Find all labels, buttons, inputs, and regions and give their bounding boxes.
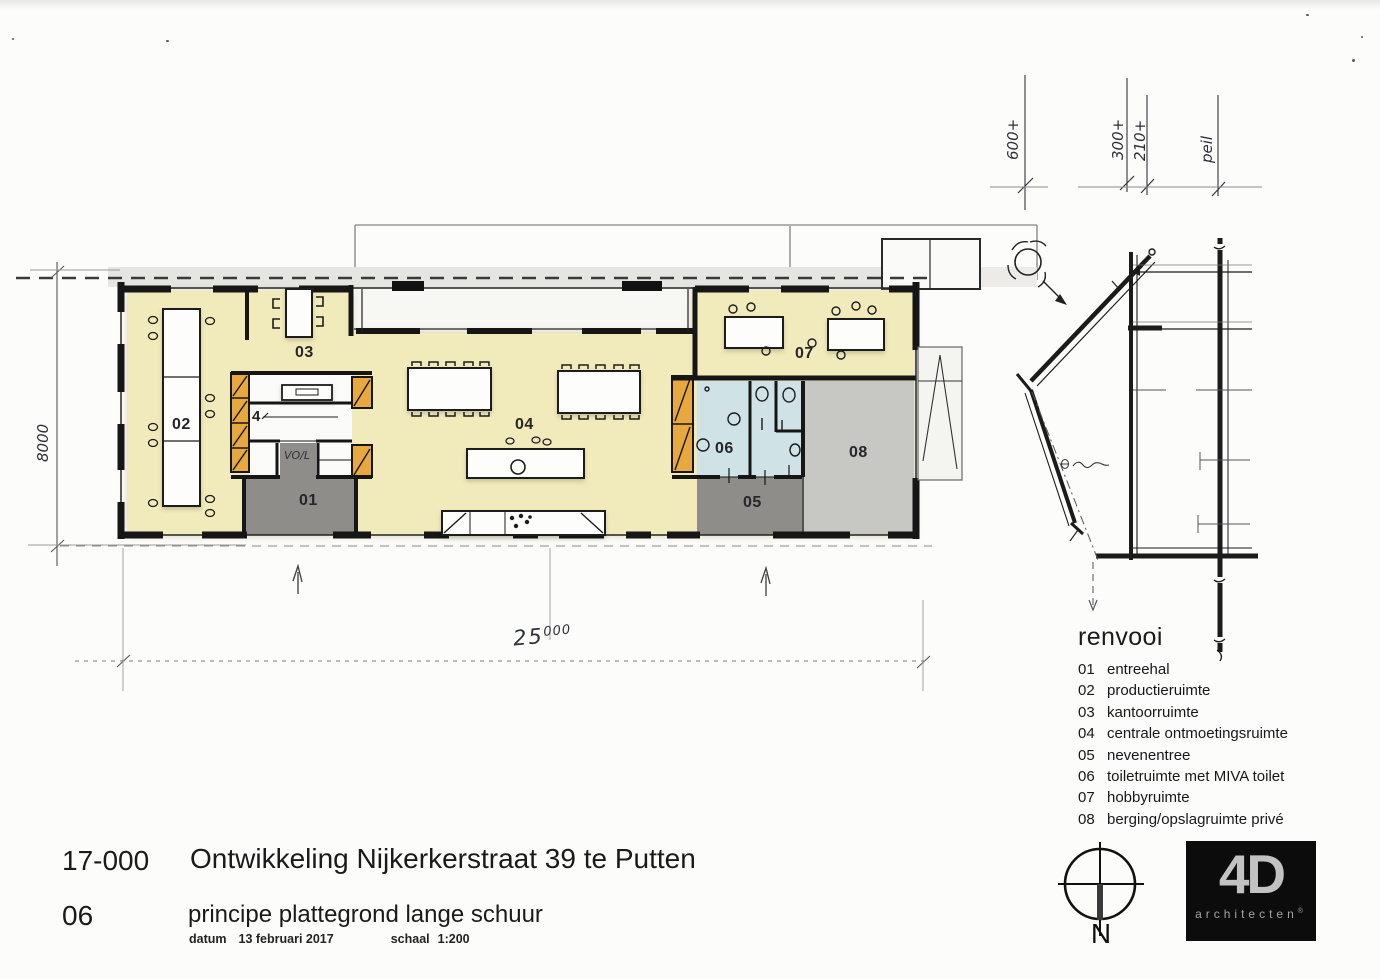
legend-item: 02productieruimte (1078, 682, 1288, 699)
legend-item-label: nevenentree (1107, 747, 1190, 764)
core-note-label: VO/L (284, 449, 310, 462)
sun-icon (1008, 241, 1046, 287)
date-scale-row: datum13 februari 2017schaal1:200 (189, 932, 470, 946)
level-300: 300+ (1109, 119, 1127, 160)
legend-item: 04centrale ontmoetingsruimte (1078, 725, 1288, 742)
level-peil: peil (1198, 136, 1216, 163)
room-label-05: 05 (743, 494, 762, 512)
scan-speck (1306, 14, 1309, 16)
architect-logo: 4D architecten® (1186, 841, 1316, 941)
dimension-main: 25 (512, 624, 545, 651)
datum-value: 13 februari 2017 (239, 932, 334, 946)
legend-list: 01entreehal 02productieruimte 03kantoorr… (1078, 661, 1288, 828)
project-number: 17-000 (62, 845, 149, 877)
core-number-label: 4 (252, 408, 260, 425)
legend-item-number: 06 (1078, 768, 1107, 785)
north-label: N (1085, 918, 1117, 950)
room-label-02: 02 (172, 416, 191, 434)
project-title: Ontwikkeling Nijkerkerstraat 39 te Putte… (190, 843, 696, 875)
legend-item-label: hobbyruimte (1107, 789, 1190, 806)
dimension-bottom-25000: 25000 (512, 621, 572, 650)
level-600: 600+ (1004, 119, 1022, 160)
legend-item-number: 08 (1078, 811, 1107, 828)
legend-item-number: 04 (1078, 725, 1107, 742)
porch-recess (356, 287, 694, 333)
room-label-06: 06 (715, 440, 734, 458)
logo-brand: 4D (1186, 847, 1316, 902)
legend-item-label: productieruimte (1107, 682, 1210, 699)
legend-item-label: centrale ontmoetingsruimte (1107, 725, 1288, 742)
room-label-04: 04 (515, 416, 534, 434)
drawing-sheet: 01 02 03 04 05 06 07 08 4 VO/L 8000 2500… (0, 0, 1380, 979)
room-label-08: 08 (849, 444, 868, 462)
legend-item-label: berging/opslagruimte privé (1107, 811, 1284, 828)
legend-item: 06toiletruimte met MIVA toilet (1078, 768, 1288, 785)
legend-item: 07hobbyruimte (1078, 789, 1288, 806)
legend-item: 03kantoorruimte (1078, 704, 1288, 721)
sheet-number: 06 (62, 900, 93, 932)
registered-mark: ® (1298, 908, 1307, 915)
room-label-03: 03 (295, 344, 314, 362)
dimension-left-8000: 8000 (34, 424, 52, 462)
legend-item-number: 02 (1078, 682, 1107, 699)
datum-label: datum (189, 932, 227, 946)
schaal-value: 1:200 (438, 932, 470, 946)
legend-item-label: entreehal (1107, 661, 1170, 678)
legend-item: 01entreehal (1078, 661, 1288, 678)
legend-item-number: 07 (1078, 789, 1107, 806)
legend-item-label: toiletruimte met MIVA toilet (1107, 768, 1284, 785)
room-label-07: 07 (795, 345, 814, 363)
legend-item-number: 01 (1078, 661, 1107, 678)
dimension-superscript: 000 (543, 622, 572, 639)
schaal-label: schaal (391, 932, 430, 946)
legend-item: 05nevenentree (1078, 747, 1288, 764)
sheet-title: principe plattegrond lange schuur (188, 901, 543, 929)
side-door-outline (918, 347, 962, 480)
room-label-01: 01 (299, 492, 318, 510)
legend-item: 08berging/opslagruimte privé (1078, 811, 1288, 828)
floor-plan-drawing (0, 0, 1060, 720)
entrance-arrows (293, 566, 770, 596)
legend-item-label: kantoorruimte (1107, 704, 1199, 721)
level-210: 210+ (1131, 120, 1149, 161)
section-sketch (960, 30, 1380, 670)
logo-subtitle: architecten® (1186, 907, 1316, 921)
legend-item-number: 03 (1078, 704, 1107, 721)
legend-heading: renvooi (1078, 623, 1163, 652)
sun-arrow-icon (1043, 281, 1067, 305)
legend-item-number: 05 (1078, 747, 1107, 764)
